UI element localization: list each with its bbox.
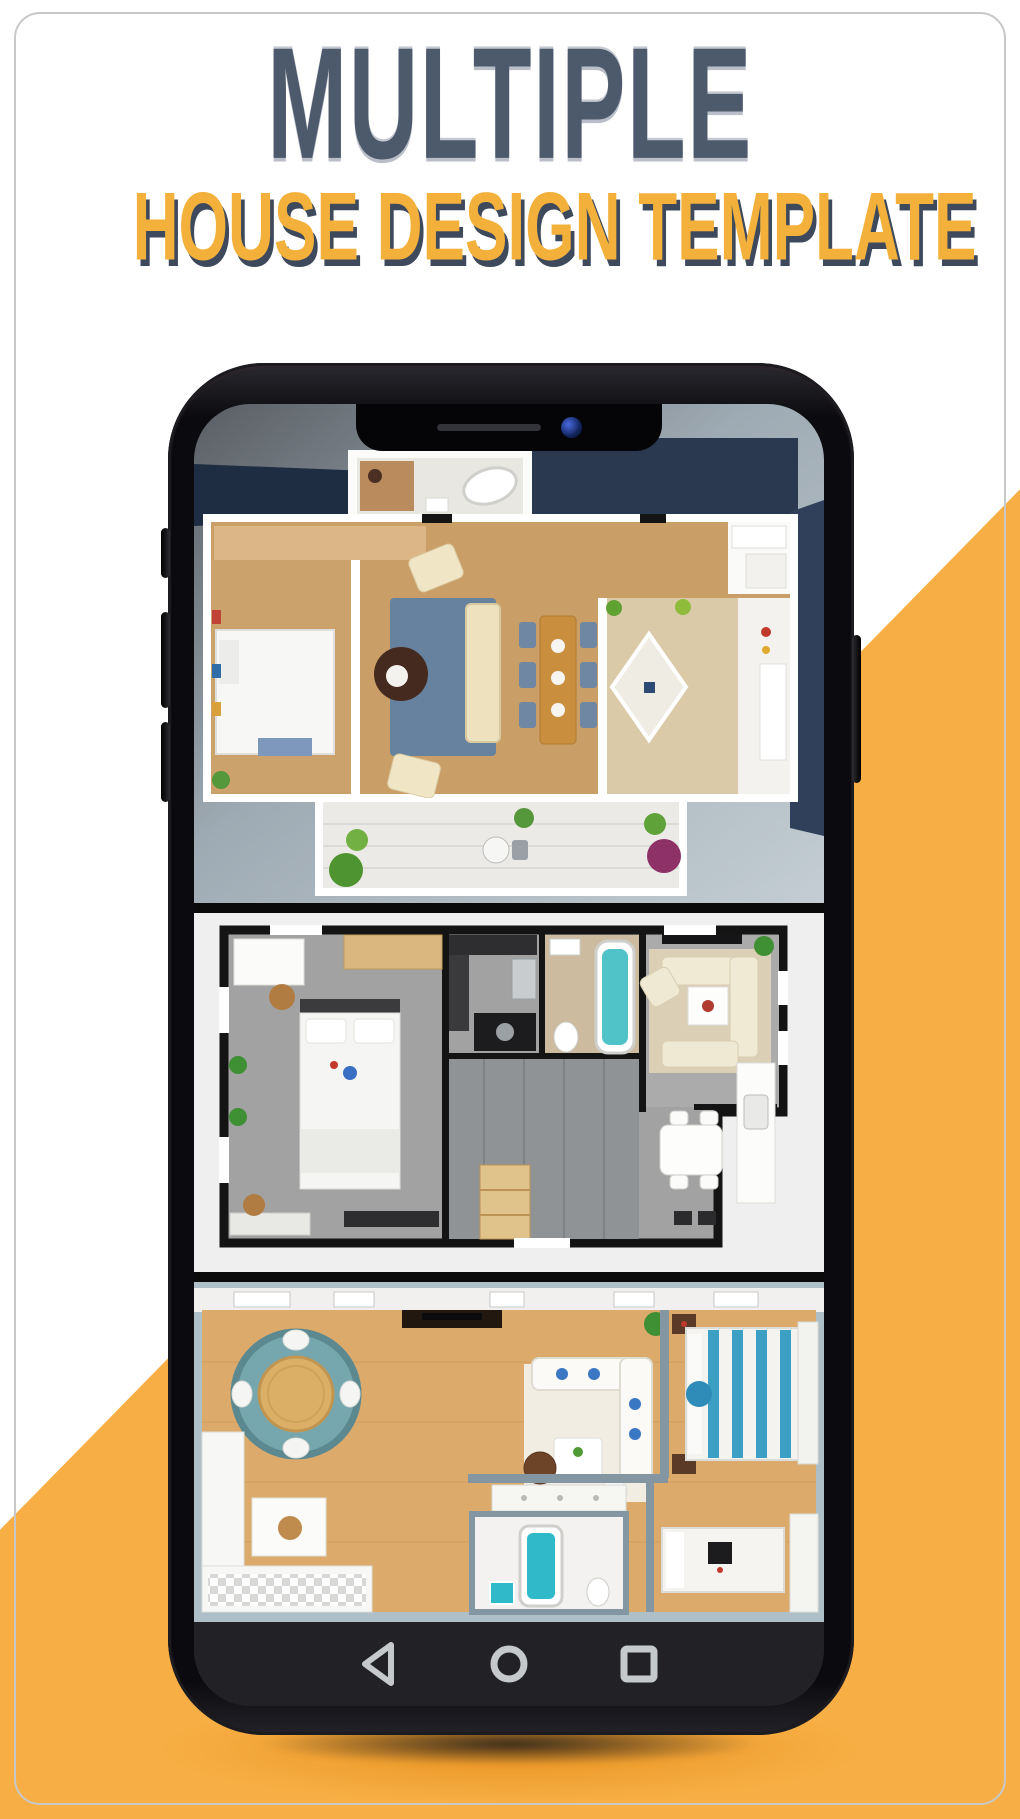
volume-up-button [161,612,170,708]
android-navigation-bar [194,1622,824,1706]
plan-divider [194,1272,824,1282]
plan1-bathroom [348,450,532,522]
mute-switch [161,528,170,578]
power-button [852,635,861,783]
back-icon[interactable] [357,1640,401,1688]
plan1-bedroom [211,560,351,792]
phone-mockup [168,363,854,1735]
home-icon[interactable] [487,1640,531,1688]
plan1-dining-area [519,616,597,744]
recents-icon[interactable] [617,1640,661,1688]
plan1-entry-room [728,522,790,594]
plan2-hallway [480,1165,530,1239]
plan3-tv-console [402,1310,502,1328]
promo-title: MULTIPLE [133,24,888,183]
plan3-bathroom [472,1514,626,1612]
page-background: MULTIPLE HOUSE DESIGN TEMPLATE [0,0,1020,1819]
plan1-kitchen [606,598,790,794]
floor-plan-2[interactable] [194,913,824,1272]
phone-notch [356,404,662,451]
plan2-living-room [638,933,774,1073]
volume-down-button [161,722,170,802]
plan1-balcony [315,798,687,896]
speaker-icon [437,424,541,431]
plan3-dining-area [232,1330,360,1458]
front-camera-icon [561,417,582,438]
floor-plan-1[interactable] [194,404,824,903]
promo-subtitle: HOUSE DESIGN TEMPLATE [133,179,888,275]
plan3-bedroom [672,1314,818,1474]
plan-divider [194,903,824,913]
phone-screen [194,404,824,1706]
floor-plan-3[interactable] [194,1282,824,1622]
promo-header: MULTIPLE HOUSE DESIGN TEMPLATE [0,0,1020,270]
